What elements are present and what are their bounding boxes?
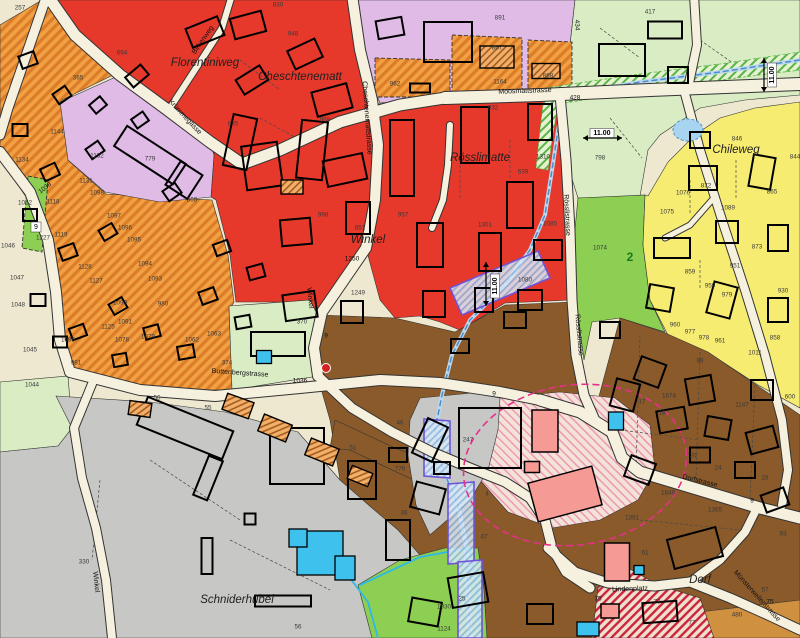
parcel-number: 365 — [73, 75, 84, 82]
parcel-number: 1249 — [351, 290, 366, 297]
parcel-number: 872 — [701, 183, 712, 190]
parcel-number: 835 — [228, 121, 239, 128]
map-label: 1036 — [293, 378, 308, 385]
parcel-number: 977 — [685, 329, 696, 336]
parcel-number: 1052 — [18, 200, 33, 207]
parcel-number: 28 — [761, 475, 769, 482]
parcel-number: 247 — [463, 437, 474, 444]
area-label: Dorf — [689, 574, 713, 586]
map-label: 11.00 — [593, 130, 610, 137]
parcel-number: 1391 — [625, 515, 640, 522]
parcel-number: 776 — [395, 466, 406, 473]
parcel-number: 891 — [495, 15, 506, 22]
building-public — [609, 412, 624, 430]
parcel-number: 257 — [15, 5, 26, 12]
parcel-number: 24 — [714, 465, 722, 472]
parcel-number: 1124 — [437, 626, 451, 633]
parcel-number: 1227 — [36, 235, 51, 242]
parcel-number: 1930 — [437, 604, 452, 611]
parcel-number: 844 — [790, 154, 800, 161]
parcel-number: 979 — [722, 292, 733, 299]
parcel-number: 948 — [288, 31, 299, 38]
parcel-number: 1091 — [118, 319, 133, 326]
parcel-number: 1075 — [660, 209, 675, 216]
zoning-map-svg: FlorentiniwegCheschtenemattRösslimatteWi… — [0, 0, 800, 638]
parcel-number: 1011 — [748, 350, 762, 357]
parcel-number: 98 — [696, 358, 704, 365]
parcel-number: 1094 — [138, 261, 153, 268]
area-label: Cheschtenematt — [258, 71, 343, 83]
parcel-number: 957 — [398, 212, 409, 219]
parcel-number: 998 — [318, 212, 329, 219]
building-church — [525, 462, 540, 473]
parcel-number: 981 — [71, 360, 82, 367]
parcel-number: 78 — [653, 599, 661, 606]
parcel-number: 868 — [543, 73, 554, 80]
parcel-number: 1078 — [115, 337, 130, 344]
parcel-number: 77 — [688, 620, 696, 627]
parcel-number: 968 — [320, 117, 331, 124]
parcel-number: 1048 — [11, 302, 26, 309]
parcel-number: 980 — [158, 301, 169, 308]
parcel-number: 1301 — [478, 222, 493, 229]
map-label: 75 — [594, 596, 602, 603]
parcel-number: 1046 — [1, 243, 16, 250]
parcel-number: 374 — [222, 360, 233, 367]
parcel-number: 962 — [390, 81, 401, 88]
parcel-number: 851 — [355, 225, 366, 232]
parcel-number: 368 — [187, 197, 198, 204]
map-label: 428 — [570, 95, 581, 102]
parcel-number: 1164 — [493, 79, 507, 86]
building-public — [577, 622, 599, 636]
pond — [673, 119, 703, 141]
area-label: Florentiniweg — [171, 57, 240, 69]
map-label: 9 — [750, 498, 754, 505]
parcel-number: 25 — [458, 596, 466, 603]
parcel-number: 56 — [153, 395, 161, 402]
map-label: 75 — [766, 599, 774, 606]
parcel-number: 480 — [732, 612, 743, 619]
parcel-number: 930 — [778, 288, 789, 295]
parcel-number: 1076 — [676, 190, 691, 197]
stream-corridor-b — [448, 482, 474, 564]
parcel-number: 1093 — [148, 276, 163, 283]
parcel-number: 1365 — [708, 507, 723, 514]
street-label: Lindenplatz — [612, 585, 649, 593]
map-label: 434 — [573, 19, 580, 30]
area-label: Rösslimatte — [450, 152, 510, 164]
parcel-number: 1144 — [50, 129, 64, 136]
parcel-number: 779 — [145, 156, 156, 163]
parcel-number: 798 — [595, 155, 606, 162]
map-label: 11.00 — [492, 277, 499, 294]
parcel-number: 1118 — [46, 199, 60, 206]
parcel-number: 865 — [767, 189, 778, 196]
map-label: 11.00 — [769, 66, 776, 83]
parcel-number: 47 — [480, 534, 488, 541]
parcel-number: 978 — [699, 335, 710, 342]
parcel-number: 1090 — [113, 300, 128, 307]
building-public — [335, 556, 355, 580]
parcel-number: 57 — [761, 587, 769, 594]
building-public — [257, 351, 272, 364]
parcel-number: 1085 — [543, 221, 558, 228]
poi-red-dot — [322, 364, 331, 373]
building-hatched — [281, 180, 303, 194]
parcel-number: 1079 — [141, 334, 156, 341]
parcel-number: 1089 — [721, 205, 736, 212]
parcel-number: 951 — [730, 263, 741, 270]
parcel-number: 1044 — [25, 382, 40, 389]
parcel-number: 46 — [396, 420, 404, 427]
parcel-number: 1874 — [662, 393, 677, 400]
parcel-number: 1147 — [735, 402, 749, 409]
parcel-number: 1131 — [79, 178, 93, 185]
area-label: Chileweg — [712, 144, 760, 156]
parcel-number: 1096 — [118, 225, 133, 232]
map-label: 9 — [492, 391, 496, 398]
parcel-number: 1086 — [61, 337, 76, 344]
parcel-number: 17 — [638, 399, 646, 406]
parcel-number: 961 — [715, 338, 726, 345]
parcel-number: 694 — [117, 50, 128, 57]
parcel-number: 1074 — [593, 245, 608, 252]
parcel-number: 873 — [752, 244, 763, 251]
parcel-number: 1119 — [54, 232, 68, 239]
parcel-number: 1063 — [207, 331, 222, 338]
parcel-number: 1062 — [185, 337, 200, 344]
parcel-number: 1134 — [15, 157, 29, 164]
area-label: Schniderhübel — [200, 594, 274, 606]
parcel-number: 600 — [785, 394, 796, 401]
parcel-number: 832 — [488, 105, 499, 112]
parcel-number: 20 — [689, 453, 697, 460]
parcel-number: 639 — [518, 169, 529, 176]
building-church — [601, 604, 619, 618]
parcel-number: 1128 — [78, 264, 92, 271]
parcel-number: 4 — [485, 491, 489, 498]
parcel-number: 93 — [779, 531, 787, 538]
map-label: 9 — [324, 333, 328, 340]
parcel-number: 1045 — [23, 347, 38, 354]
parcel-number: 417 — [645, 9, 656, 16]
parcel-number: 61 — [641, 550, 649, 557]
parcel-number: 959 — [705, 283, 716, 290]
parcel-number: 1098 — [90, 190, 105, 197]
building-public — [634, 566, 644, 575]
parcel-number: 867 — [492, 45, 503, 52]
parcel-number: 55 — [204, 405, 212, 412]
parcel-number: 51 — [349, 445, 357, 452]
map-label: 9 — [34, 224, 38, 231]
parcel-number: 830 — [273, 2, 284, 9]
building-church — [605, 543, 630, 581]
parcel-number: 1047 — [10, 275, 25, 282]
parcel-number: 370 — [297, 319, 308, 326]
parcel-number: 1125 — [101, 324, 115, 331]
parcel-number: 1095 — [127, 237, 142, 244]
building-church — [532, 410, 558, 452]
parcel-number: 36 — [400, 510, 408, 517]
map-canvas[interactable]: FlorentiniwegCheschtenemattRösslimatteWi… — [0, 0, 800, 638]
parcel-number: 330 — [79, 559, 90, 566]
parcel-number: 1132 — [90, 153, 104, 160]
parcel-number: 1080 — [518, 277, 533, 284]
map-label: 2 — [627, 250, 634, 264]
parcel-number: 1127 — [89, 278, 103, 285]
building-hatched — [128, 401, 152, 418]
zone-hatch-parcel-962 — [375, 58, 450, 97]
building-public — [289, 529, 307, 547]
area-label: Winkel — [351, 234, 386, 246]
parcel-number: 18 — [658, 410, 666, 417]
parcel-number: 859 — [685, 269, 696, 276]
parcel-number: 858 — [770, 335, 781, 342]
parcel-number: 1849 — [661, 490, 676, 497]
parcel-number: 1310 — [536, 154, 551, 161]
parcel-number: 1097 — [107, 213, 122, 220]
parcel-number: 960 — [670, 322, 681, 329]
map-label: 1250 — [345, 256, 360, 263]
parcel-number: 846 — [732, 136, 743, 143]
parcel-number: 56 — [294, 624, 302, 631]
